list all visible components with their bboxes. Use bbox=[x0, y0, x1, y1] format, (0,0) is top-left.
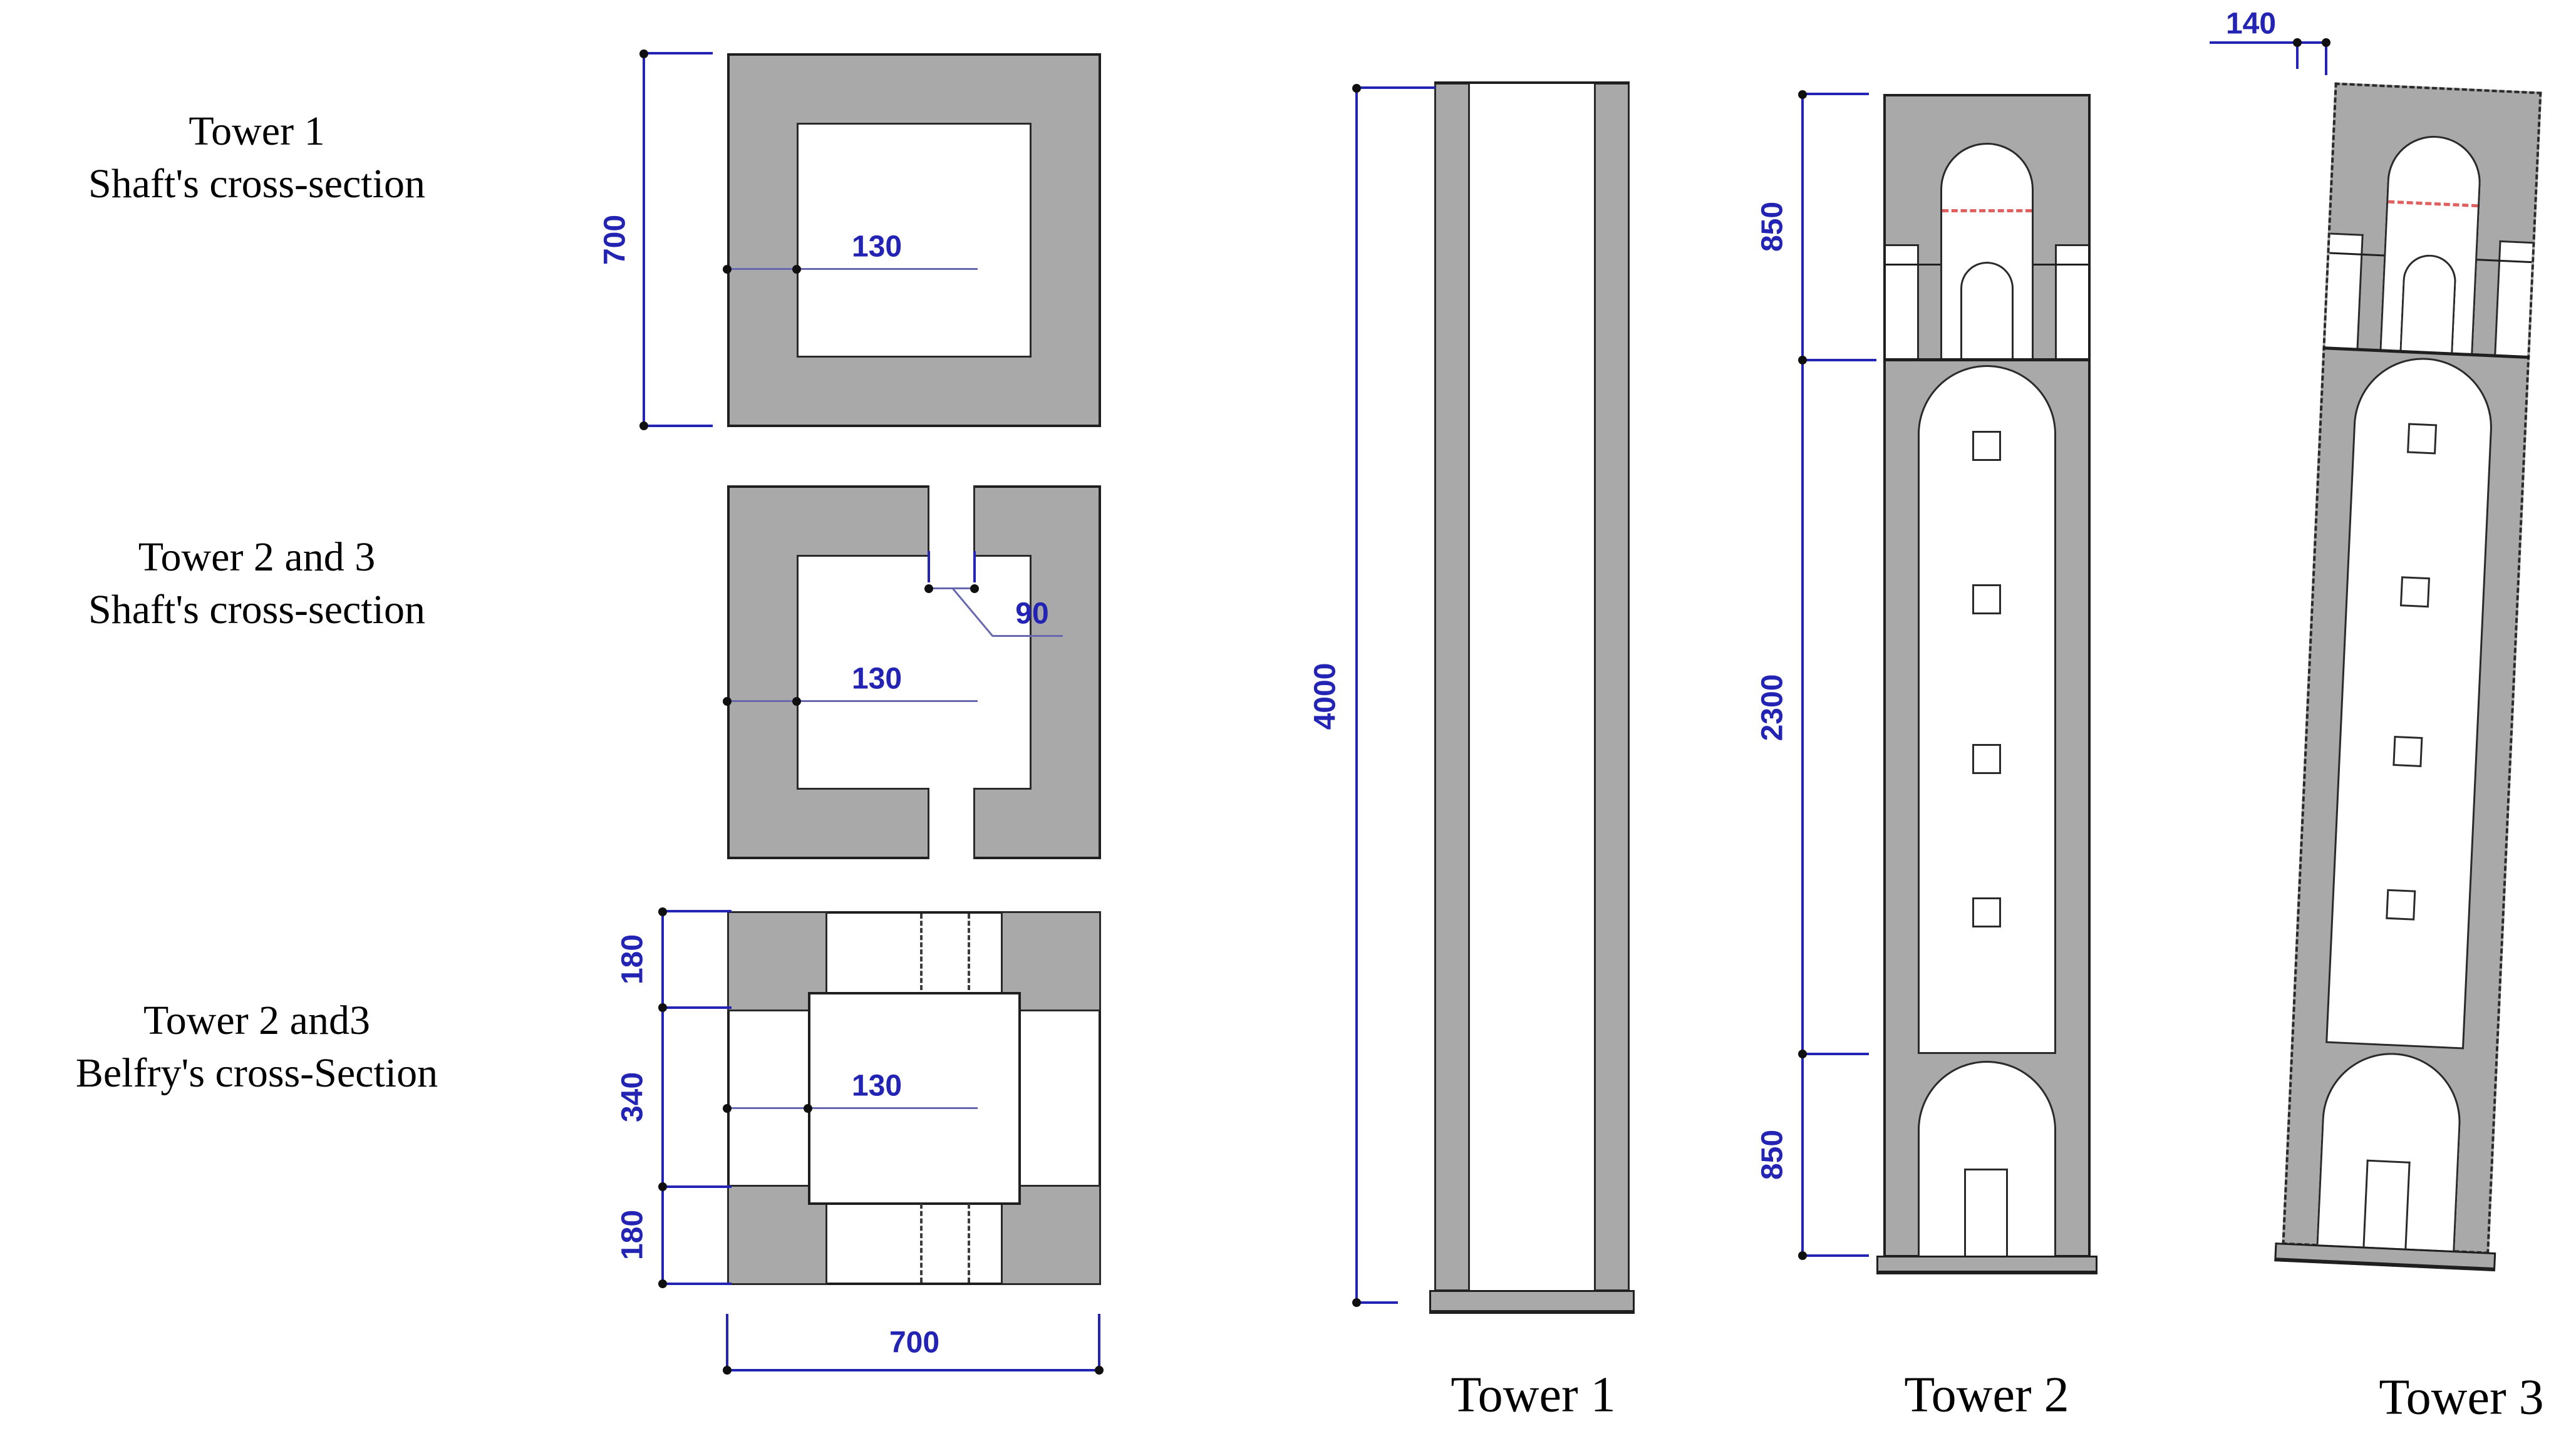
cs2-dim-slot-tick-left bbox=[928, 551, 930, 582]
cs3-dim-180-top: 180 bbox=[616, 934, 650, 984]
cs1-dim-wall-text: 130 bbox=[852, 230, 902, 264]
t1-dim-height-text: 4000 bbox=[1308, 663, 1343, 730]
dim-dot bbox=[1798, 90, 1807, 99]
t2-window bbox=[1972, 431, 2001, 461]
t1-wall-right bbox=[1594, 83, 1630, 1291]
cs3-dim-chain-line bbox=[661, 911, 664, 1285]
t2-dim-base-text: 850 bbox=[1756, 1130, 1790, 1180]
dim-dot bbox=[1352, 84, 1361, 93]
t1-base-slab bbox=[1429, 1290, 1635, 1314]
t2-window bbox=[1972, 897, 2001, 927]
dim-dot bbox=[970, 584, 979, 593]
t2-belfry-inner-arch bbox=[1960, 262, 2014, 359]
label-line: Tower 1 bbox=[0, 105, 514, 158]
t3-window bbox=[2407, 423, 2437, 454]
t3-leaning-group bbox=[2280, 83, 2542, 1290]
t2-shaft-arch bbox=[1918, 365, 2056, 1054]
t2-belfry-band-divider-left bbox=[1886, 264, 1941, 266]
cs1-inner-void bbox=[797, 123, 1032, 358]
figure-canvas: Tower 1 Shaft's cross-section Tower 2 an… bbox=[0, 0, 2576, 1451]
t1-dim-tick-bottom bbox=[1355, 1301, 1398, 1304]
t2-dim-belfry-text: 850 bbox=[1756, 202, 1790, 252]
t2-window bbox=[1972, 584, 2001, 614]
dim-dot bbox=[1798, 1251, 1807, 1260]
dim-dot bbox=[723, 697, 732, 706]
dim-dot bbox=[658, 1279, 667, 1288]
cs2-dim-slot-leader-h bbox=[993, 635, 1063, 637]
cs3-central-void bbox=[808, 992, 1021, 1205]
dim-dot bbox=[658, 907, 667, 916]
cs1-dim-height-text: 700 bbox=[598, 215, 633, 265]
dim-dot bbox=[658, 1182, 667, 1191]
dim-dot bbox=[1798, 1050, 1807, 1058]
t2-window bbox=[1972, 744, 2001, 774]
t2-dim-tick bbox=[1801, 1053, 1869, 1055]
cs3-dim-340: 340 bbox=[616, 1072, 650, 1122]
t3-dim-offset-tick bbox=[2325, 43, 2327, 75]
t2-crack-line bbox=[1942, 209, 2032, 212]
dim-dot bbox=[1798, 356, 1807, 364]
cs2-dim-slot-text: 90 bbox=[1015, 597, 1048, 631]
t3-belfry-inner-arch bbox=[2399, 254, 2457, 354]
cs3-dim-width-tick-right bbox=[1098, 1314, 1100, 1371]
cs3-dim-tick bbox=[661, 1283, 732, 1285]
label-line: Shaft's cross-section bbox=[0, 158, 514, 210]
cs2-slot-top bbox=[928, 485, 975, 557]
dim-dot bbox=[792, 697, 801, 706]
cs1-dim-height-tick-top bbox=[643, 52, 713, 54]
dim-dot bbox=[723, 265, 732, 274]
t1-dim-tick-top bbox=[1355, 86, 1435, 89]
t2-dim-shaft-text: 2300 bbox=[1756, 674, 1790, 741]
dim-dot bbox=[1352, 1298, 1361, 1307]
dim-dot bbox=[658, 1003, 667, 1012]
cs2-dim-slot-tick-right bbox=[973, 551, 976, 582]
cs3-dashed-line bbox=[968, 1204, 970, 1283]
cs3-dashed-line bbox=[920, 914, 923, 990]
t3-dim-offset-text: 140 bbox=[2226, 7, 2276, 41]
label-line: Tower 2 and3 bbox=[0, 994, 514, 1047]
t1-dim-height-line bbox=[1355, 88, 1358, 1304]
cs3-dim-width-line bbox=[727, 1369, 1101, 1371]
t1-wall-left bbox=[1434, 83, 1470, 1291]
dim-dot bbox=[639, 49, 648, 58]
t2-belfry-floor bbox=[1883, 358, 2091, 361]
dim-dot bbox=[1095, 1366, 1104, 1375]
dim-dot bbox=[723, 1366, 732, 1375]
cs3-dim-width-tick-left bbox=[726, 1314, 728, 1371]
cs3-dim-wall-text: 130 bbox=[852, 1069, 902, 1103]
cs3-dashed-line bbox=[920, 1204, 923, 1283]
t3-window bbox=[2386, 889, 2416, 921]
t2-dim-chain-line bbox=[1801, 94, 1804, 1257]
cs3-dim-tick bbox=[661, 910, 732, 912]
cs1-dim-height-tick-bottom bbox=[643, 425, 713, 427]
cs1-dim-wall-line bbox=[727, 268, 978, 270]
cs3-dim-tick bbox=[661, 1006, 732, 1009]
t3-door bbox=[2362, 1160, 2410, 1249]
t2-belfry-band-left bbox=[1886, 244, 1919, 359]
t1-top-edge bbox=[1434, 81, 1630, 84]
t2-base-slab bbox=[1876, 1256, 2098, 1274]
t2-dim-tick bbox=[1801, 1254, 1869, 1257]
t3-belfry-band-left bbox=[2325, 233, 2364, 349]
dim-dot bbox=[2322, 38, 2330, 47]
label-tower23-shaft-section: Tower 2 and 3 Shaft's cross-section bbox=[0, 531, 514, 636]
cs2-slot-bottom bbox=[928, 788, 975, 859]
t2-label: Tower 2 bbox=[1904, 1367, 2069, 1424]
t2-belfry-band-right bbox=[2055, 244, 2088, 359]
cs3-dim-180-bottom: 180 bbox=[616, 1210, 650, 1260]
label-line: Tower 2 and 3 bbox=[0, 531, 514, 584]
t1-label: Tower 1 bbox=[1451, 1367, 1615, 1424]
t3-belfry-band-right bbox=[2494, 240, 2532, 357]
dim-dot bbox=[2293, 38, 2302, 47]
label-line: Shaft's cross-section bbox=[0, 584, 514, 636]
dim-dot bbox=[639, 421, 648, 430]
label-tower23-belfry-section: Tower 2 and3 Belfry's cross-Section bbox=[0, 994, 514, 1100]
t2-dim-tick bbox=[1801, 93, 1869, 95]
cs2-dim-wall-line bbox=[727, 700, 978, 702]
cs3-dashed-line bbox=[968, 914, 970, 990]
cs2-dim-wall-text: 130 bbox=[852, 662, 902, 696]
t3-dim-offset-line bbox=[2210, 41, 2327, 44]
dim-dot bbox=[924, 584, 933, 593]
t3-window bbox=[2400, 576, 2430, 607]
t2-dim-tick bbox=[1801, 359, 1876, 361]
dim-dot bbox=[804, 1104, 812, 1113]
label-tower1-section: Tower 1 Shaft's cross-section bbox=[0, 105, 514, 210]
t3-window bbox=[2392, 736, 2423, 767]
cs3-dim-wall-line bbox=[727, 1107, 978, 1109]
dim-dot bbox=[792, 265, 801, 274]
cs1-dim-height-line bbox=[643, 53, 645, 427]
t2-door bbox=[1964, 1169, 2008, 1256]
cs2-inner-void bbox=[797, 555, 1032, 790]
cs3-dim-width-text: 700 bbox=[889, 1326, 939, 1360]
cs3-dim-tick bbox=[661, 1185, 732, 1188]
label-line: Belfry's cross-Section bbox=[0, 1047, 514, 1100]
t3-label: Tower 3 bbox=[2379, 1370, 2543, 1427]
t2-belfry-band-divider-right bbox=[2033, 264, 2088, 266]
dim-dot bbox=[723, 1104, 732, 1113]
